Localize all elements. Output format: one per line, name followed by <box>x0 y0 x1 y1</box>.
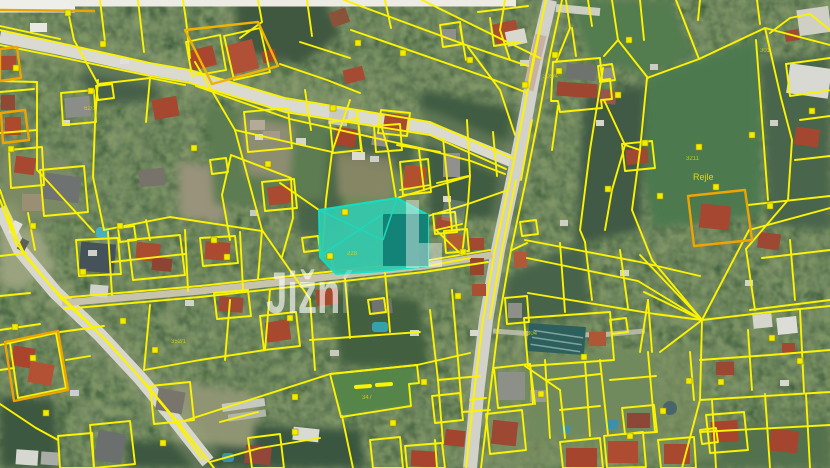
svg-text:352/1: 352/1 <box>171 339 187 345</box>
svg-text:228: 228 <box>347 251 358 257</box>
svg-text:3211: 3211 <box>686 156 700 162</box>
svg-text:62/1: 62/1 <box>84 106 96 112</box>
svg-text:Rejle: Rejle <box>693 172 714 182</box>
svg-text:301: 301 <box>760 48 771 54</box>
svg-text:347: 347 <box>362 395 373 401</box>
svg-text:Jižní: Jižní <box>266 262 352 326</box>
svg-text:305/4: 305/4 <box>543 74 559 80</box>
svg-text:304: 304 <box>527 331 538 337</box>
